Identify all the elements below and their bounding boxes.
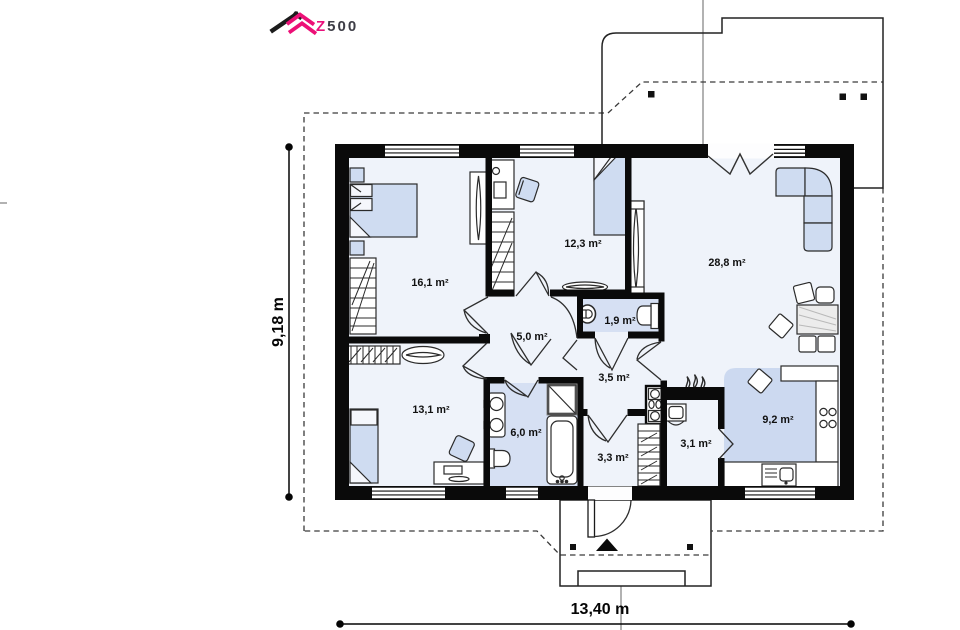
svg-text:13,40 m: 13,40 m (571, 601, 630, 618)
svg-text:Z500: Z500 (316, 18, 358, 35)
svg-text:3,5 m²: 3,5 m² (598, 372, 630, 384)
svg-text:5,0 m²: 5,0 m² (516, 331, 548, 343)
svg-text:3,3 m²: 3,3 m² (597, 452, 629, 464)
svg-text:28,8 m²: 28,8 m² (708, 257, 746, 269)
svg-text:13,1 m²: 13,1 m² (412, 404, 450, 416)
svg-text:1,9 m²: 1,9 m² (604, 315, 636, 327)
svg-text:12,3 m²: 12,3 m² (564, 238, 602, 250)
svg-text:3,1 m²: 3,1 m² (680, 438, 712, 450)
svg-text:6,0 m²: 6,0 m² (510, 427, 542, 439)
svg-text:9,2 m²: 9,2 m² (762, 414, 794, 426)
svg-text:16,1 m²: 16,1 m² (411, 277, 449, 289)
svg-text:9,18 m: 9,18 m (270, 297, 287, 347)
